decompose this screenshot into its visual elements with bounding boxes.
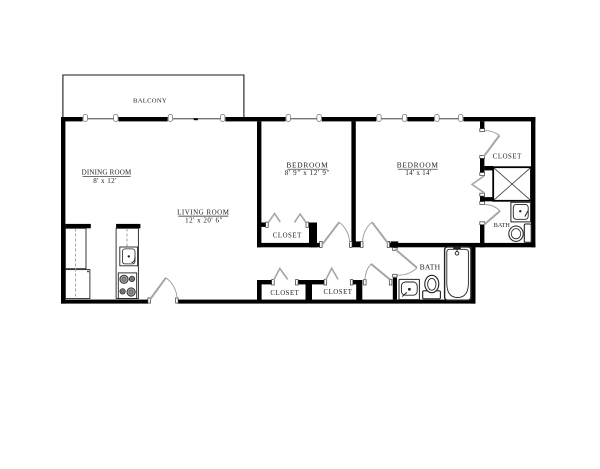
- svg-text:8' 9" x 12' 9": 8' 9" x 12' 9": [285, 169, 330, 177]
- svg-text:12' x 20' 6": 12' x 20' 6": [185, 217, 223, 225]
- svg-text:BATH: BATH: [420, 262, 441, 271]
- svg-text:8' x 12': 8' x 12': [93, 177, 117, 185]
- svg-text:DINING ROOM: DINING ROOM: [82, 169, 132, 177]
- svg-text:BEDROOM: BEDROOM: [397, 161, 439, 170]
- svg-text:14' x 14': 14' x 14': [405, 170, 431, 177]
- svg-text:LIVING ROOM: LIVING ROOM: [177, 208, 230, 216]
- svg-text:BEDROOM: BEDROOM: [286, 161, 328, 170]
- svg-text:CLOSET: CLOSET: [273, 233, 302, 240]
- svg-text:BATH: BATH: [494, 222, 511, 229]
- svg-text:CLOSET: CLOSET: [324, 289, 353, 296]
- svg-text:BALCONY: BALCONY: [133, 98, 167, 105]
- svg-text:CLOSET: CLOSET: [270, 290, 299, 297]
- svg-text:CLOSET: CLOSET: [493, 154, 522, 161]
